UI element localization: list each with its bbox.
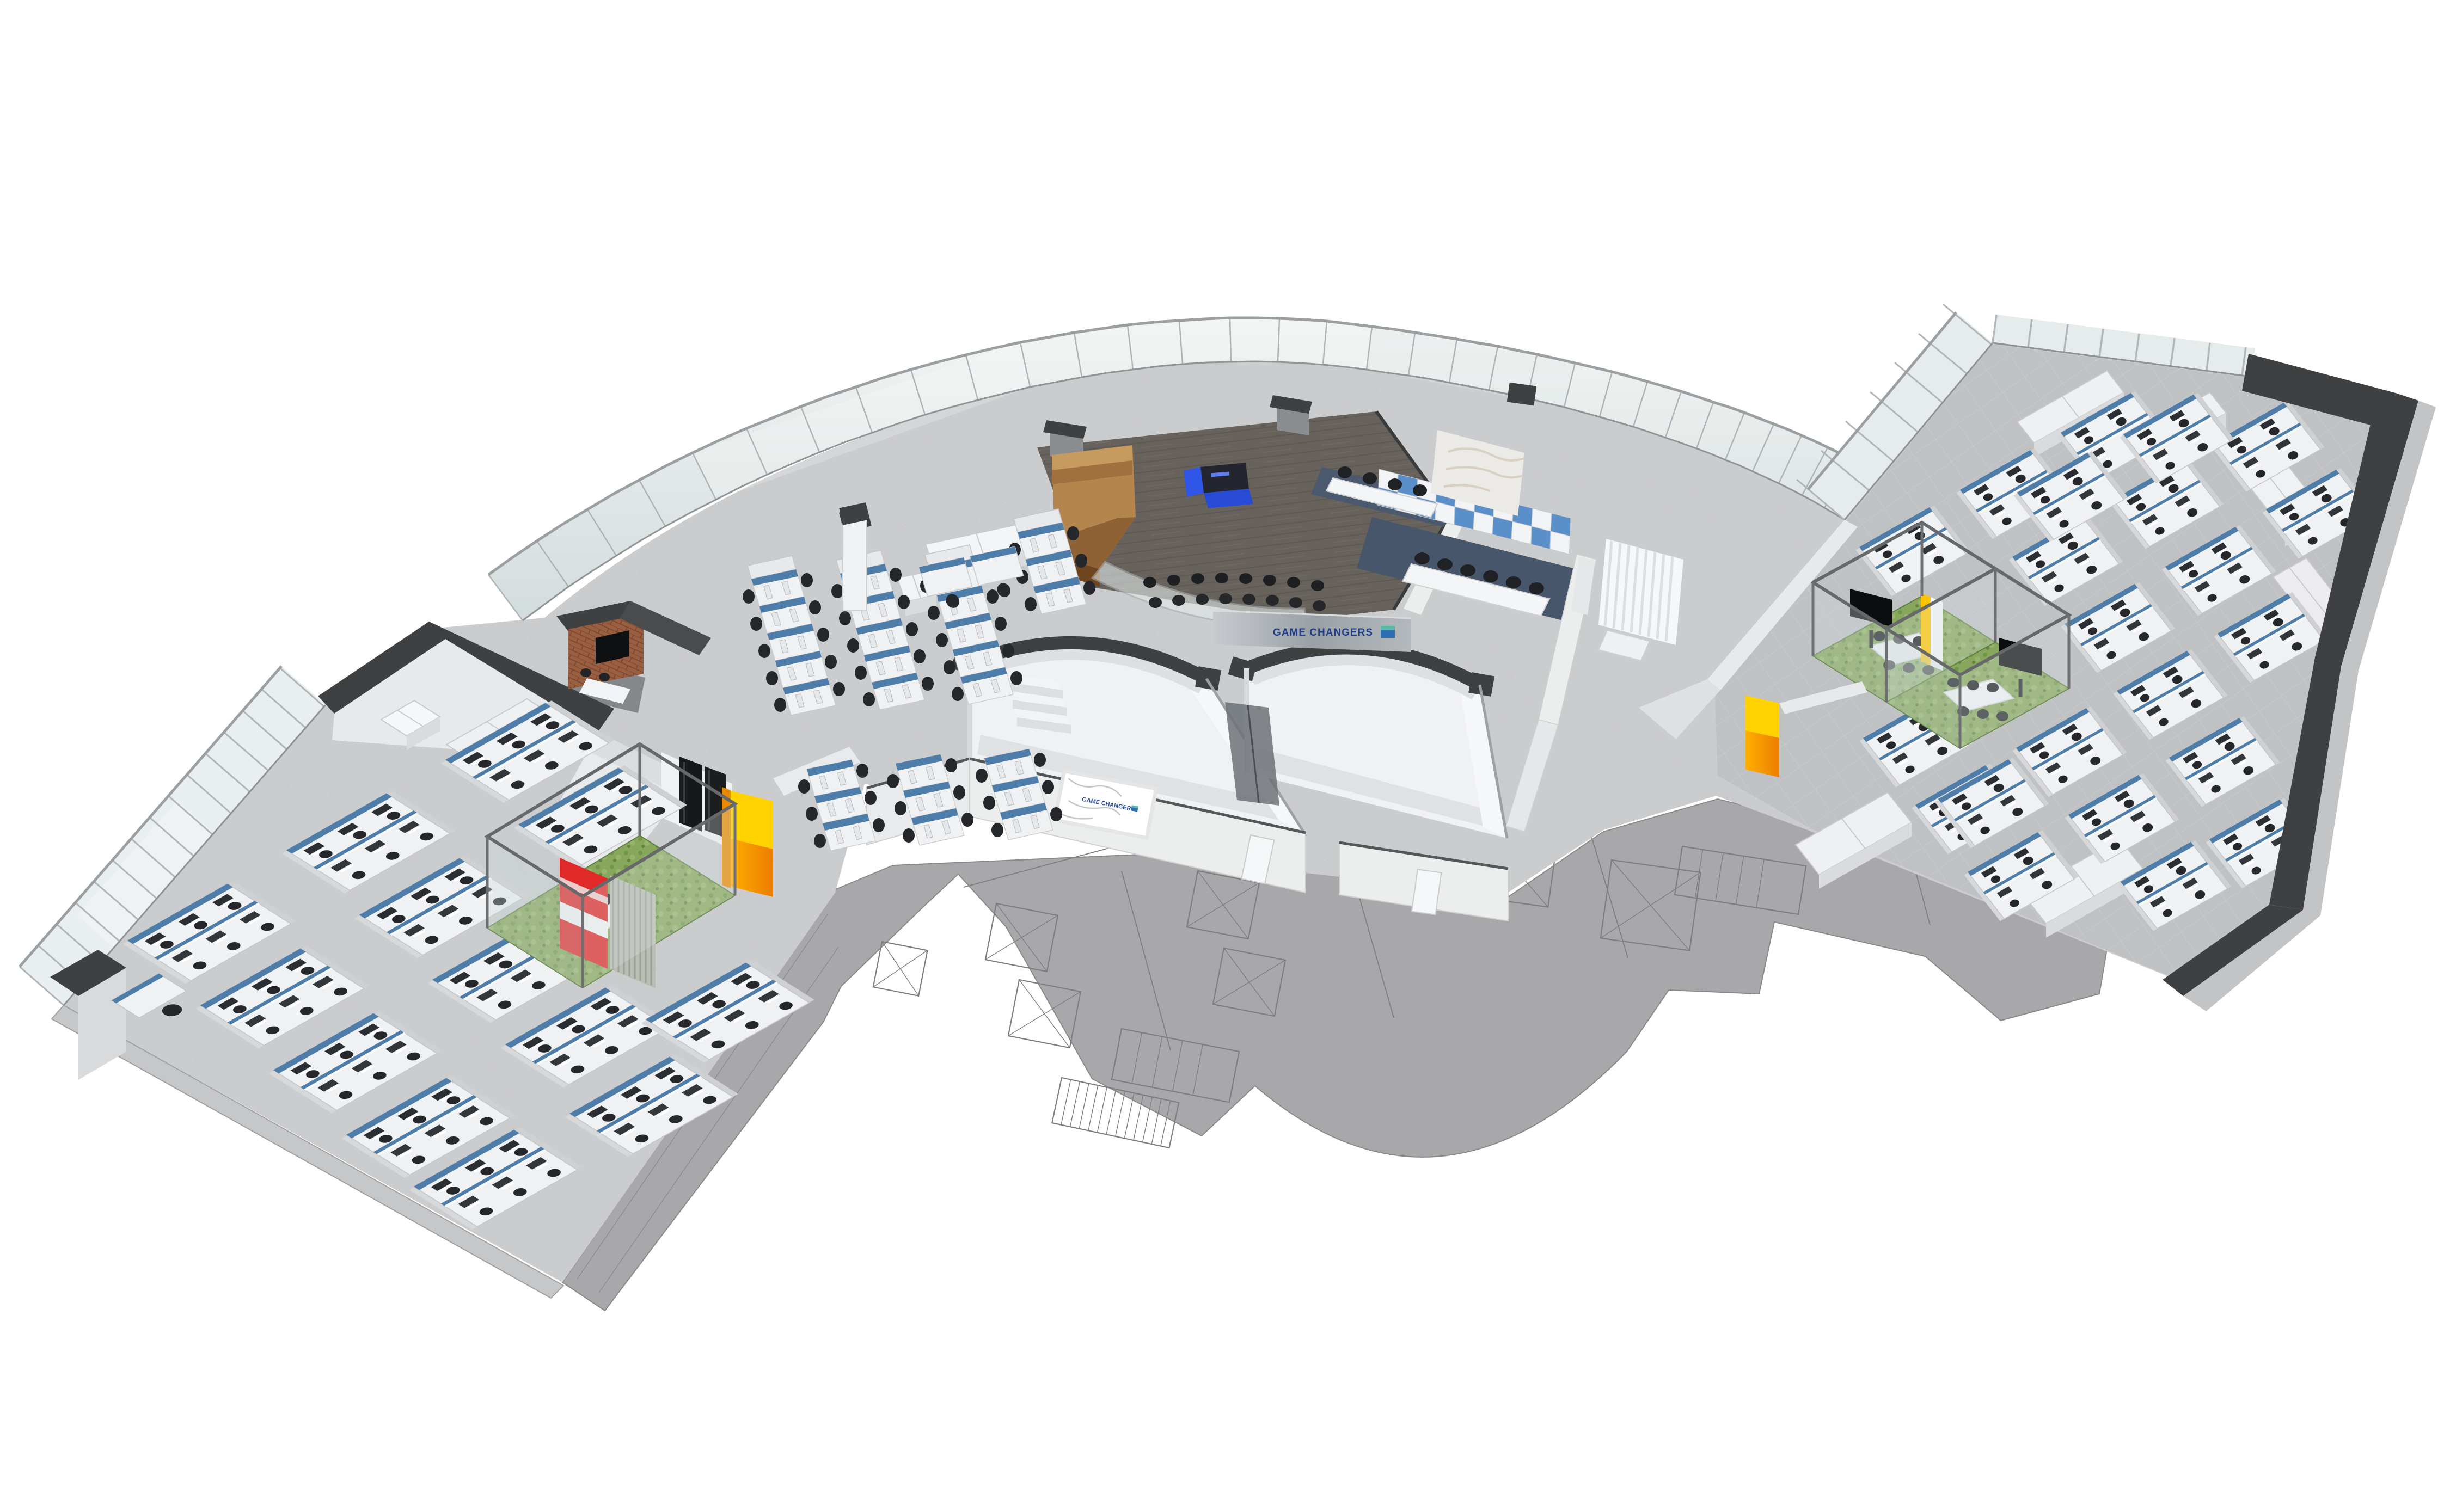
svg-text:GAME CHANGERS: GAME CHANGERS xyxy=(1273,627,1373,638)
